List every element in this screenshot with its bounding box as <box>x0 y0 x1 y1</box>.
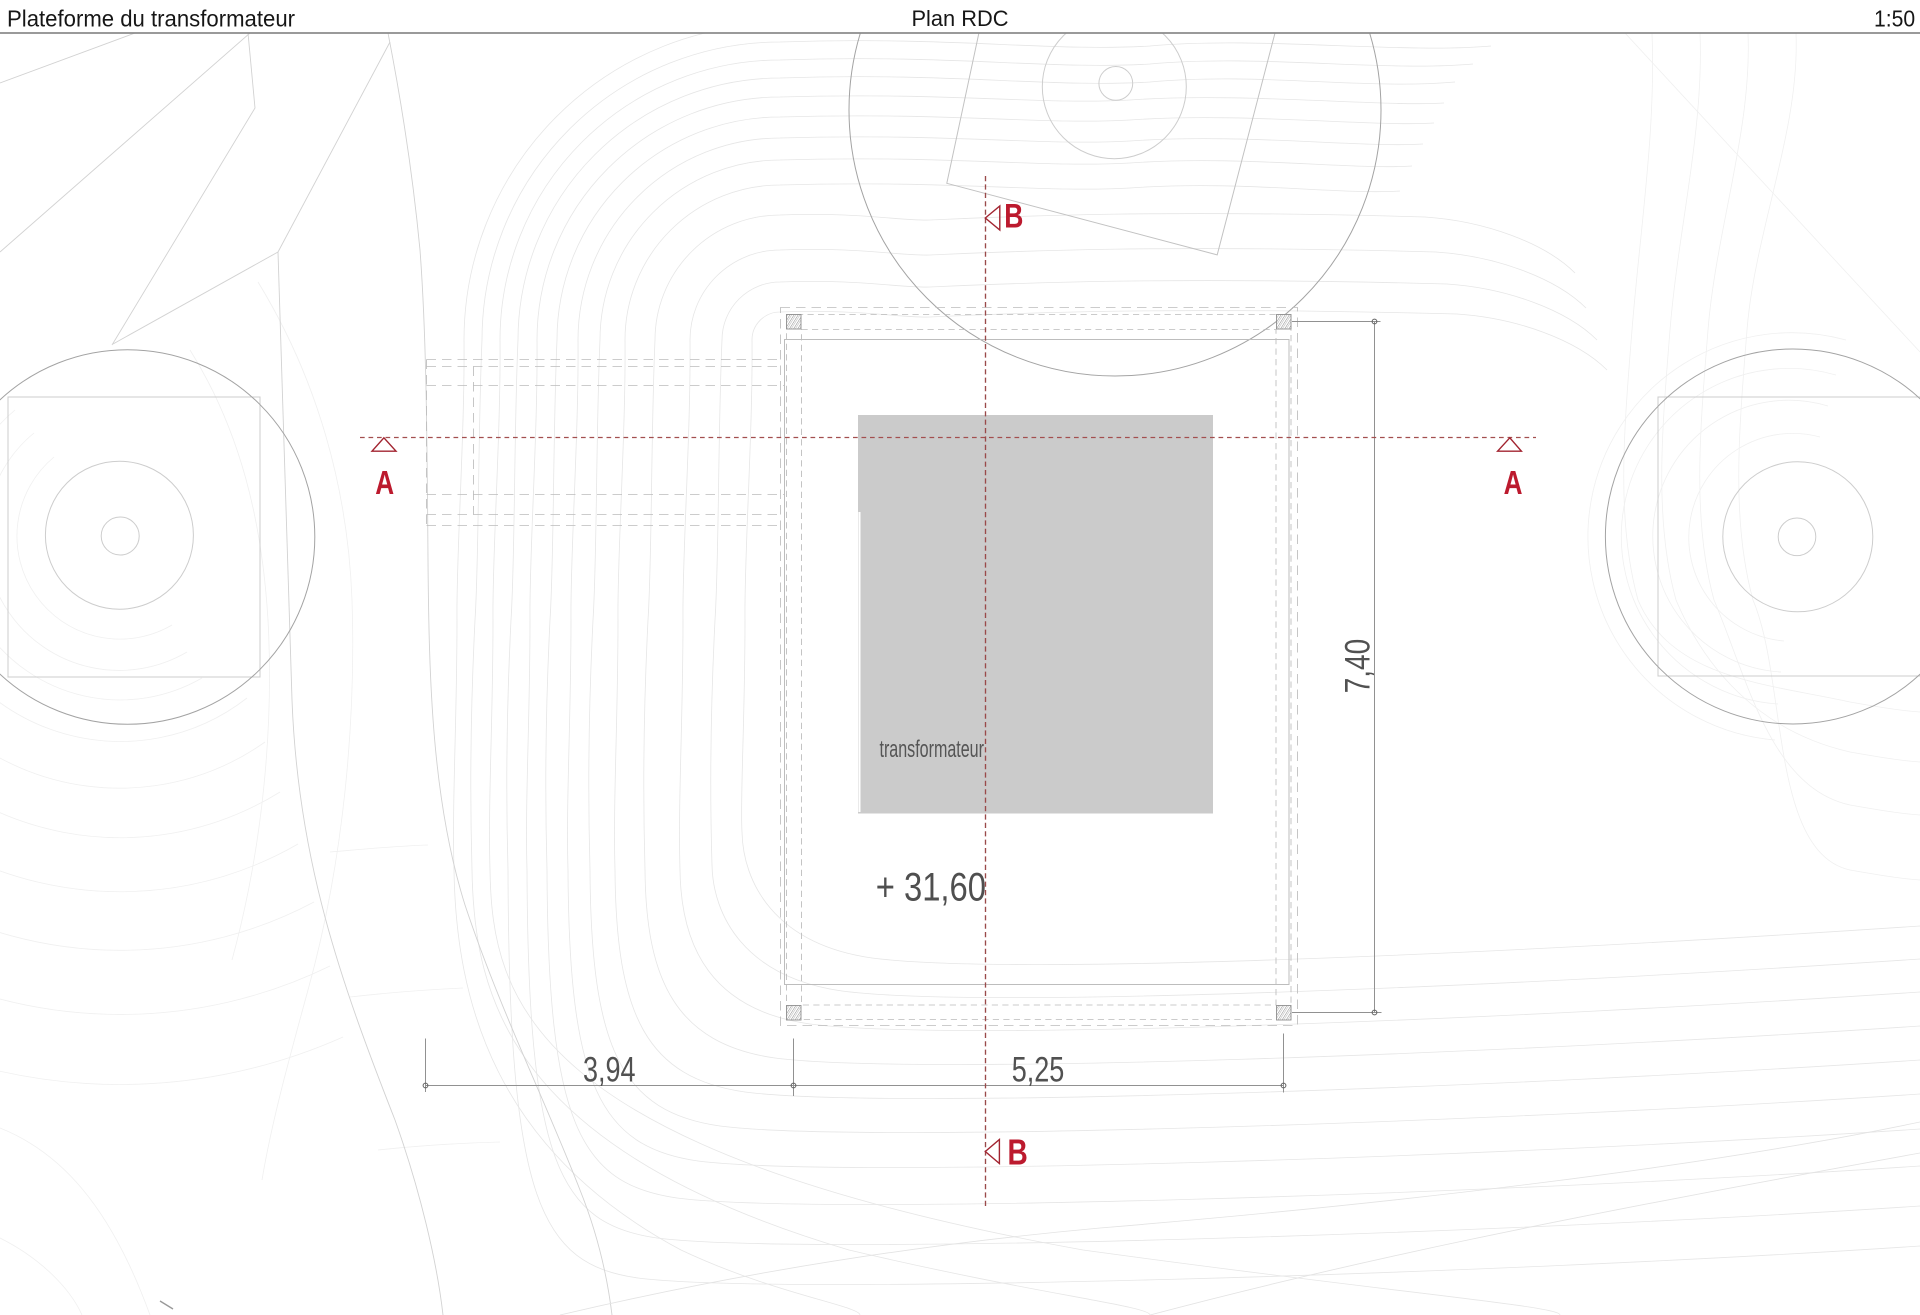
svg-text:+ 31,60: + 31,60 <box>876 864 986 909</box>
svg-text:3,94: 3,94 <box>583 1050 636 1089</box>
svg-text:5,25: 5,25 <box>1012 1050 1065 1089</box>
svg-text:7,40: 7,40 <box>1337 639 1377 693</box>
svg-text:B: B <box>1008 1132 1028 1172</box>
svg-text:B: B <box>1004 197 1023 235</box>
svg-text:A: A <box>375 465 394 502</box>
svg-text:1:50: 1:50 <box>1874 5 1915 31</box>
svg-text:transformateur: transformateur <box>880 737 985 763</box>
svg-text:A: A <box>1504 465 1523 502</box>
svg-text:Plateforme du transformateur: Plateforme du transformateur <box>7 5 295 32</box>
svg-text:Plan RDC: Plan RDC <box>912 6 1009 31</box>
